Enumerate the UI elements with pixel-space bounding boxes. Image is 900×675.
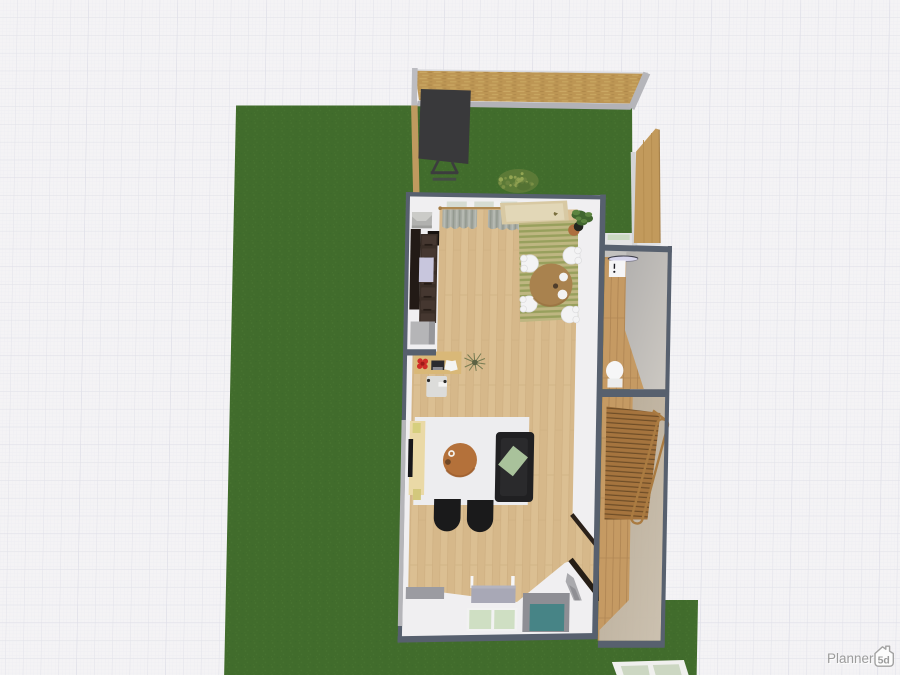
svg-text:5d: 5d — [878, 654, 890, 666]
svg-text:Planner: Planner — [827, 651, 874, 666]
